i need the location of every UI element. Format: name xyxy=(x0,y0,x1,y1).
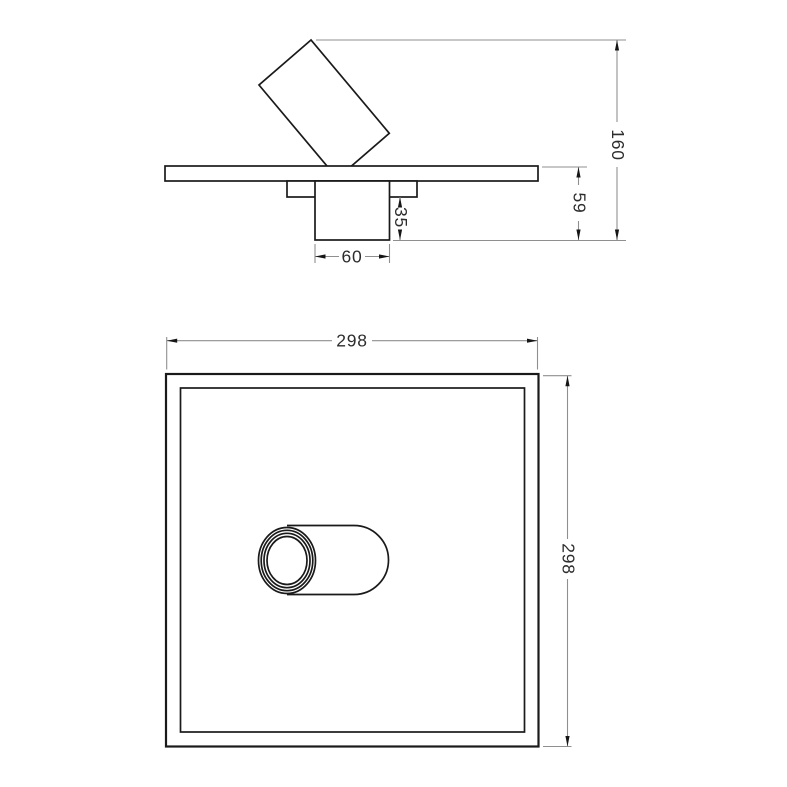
ceiling-plate-outline xyxy=(165,166,538,181)
arrowhead-right xyxy=(527,339,538,343)
arrowhead-down xyxy=(565,736,569,747)
dimension-overall-height: 160 xyxy=(608,40,628,240)
arrowhead-up xyxy=(565,376,569,387)
dim-label-panel-width: 298 xyxy=(336,331,368,351)
spot-head-bottom xyxy=(259,526,389,595)
arrowhead-up xyxy=(576,167,580,178)
spot-head-outline xyxy=(259,40,389,178)
dimension-box-width: 60 xyxy=(315,247,390,267)
dimension-plate-to-box-bottom: 59 xyxy=(570,167,590,240)
dimension-box-height: 35 xyxy=(391,197,411,240)
arrowhead-up xyxy=(398,197,402,208)
arrowhead-down xyxy=(398,230,402,241)
arrowhead-left xyxy=(167,339,178,343)
driver-box-outline xyxy=(315,181,390,240)
drawing-canvas: 160 59 35 xyxy=(0,0,787,787)
dim-label-overall-height: 160 xyxy=(608,129,628,161)
arrowhead-down xyxy=(615,230,619,241)
arrowhead-left xyxy=(315,254,326,258)
arrowhead-up xyxy=(615,40,619,51)
dim-label-plate-to-box-bottom: 59 xyxy=(570,192,590,213)
arrowhead-right xyxy=(379,254,390,258)
dim-label-panel-height: 298 xyxy=(559,543,579,575)
side-view: 160 59 35 xyxy=(165,40,628,267)
dim-label-box-height: 35 xyxy=(391,207,411,228)
bottom-view: 298 298 xyxy=(166,331,579,747)
dimension-panel-height: 298 xyxy=(559,376,579,747)
dimension-drawing: 160 59 35 xyxy=(0,0,787,787)
dimension-panel-width: 298 xyxy=(167,331,538,351)
dim-label-box-width: 60 xyxy=(341,247,362,267)
arrowhead-down xyxy=(576,230,580,241)
